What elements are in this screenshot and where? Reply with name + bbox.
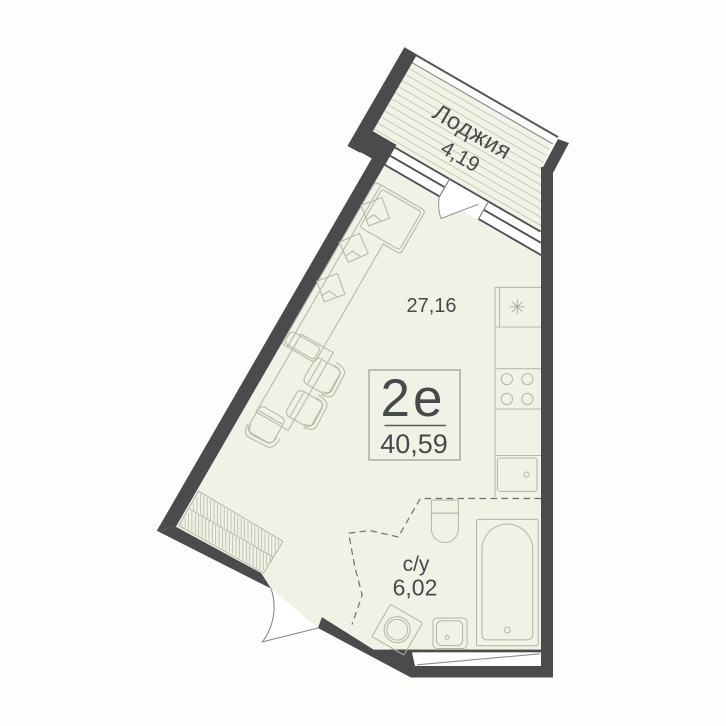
svg-text:6,02: 6,02 [393, 575, 438, 601]
svg-text:27,16: 27,16 [406, 295, 456, 317]
svg-text:с/у: с/у [403, 553, 430, 576]
svg-text:2е: 2е [381, 369, 446, 428]
svg-text:40,59: 40,59 [380, 429, 448, 459]
